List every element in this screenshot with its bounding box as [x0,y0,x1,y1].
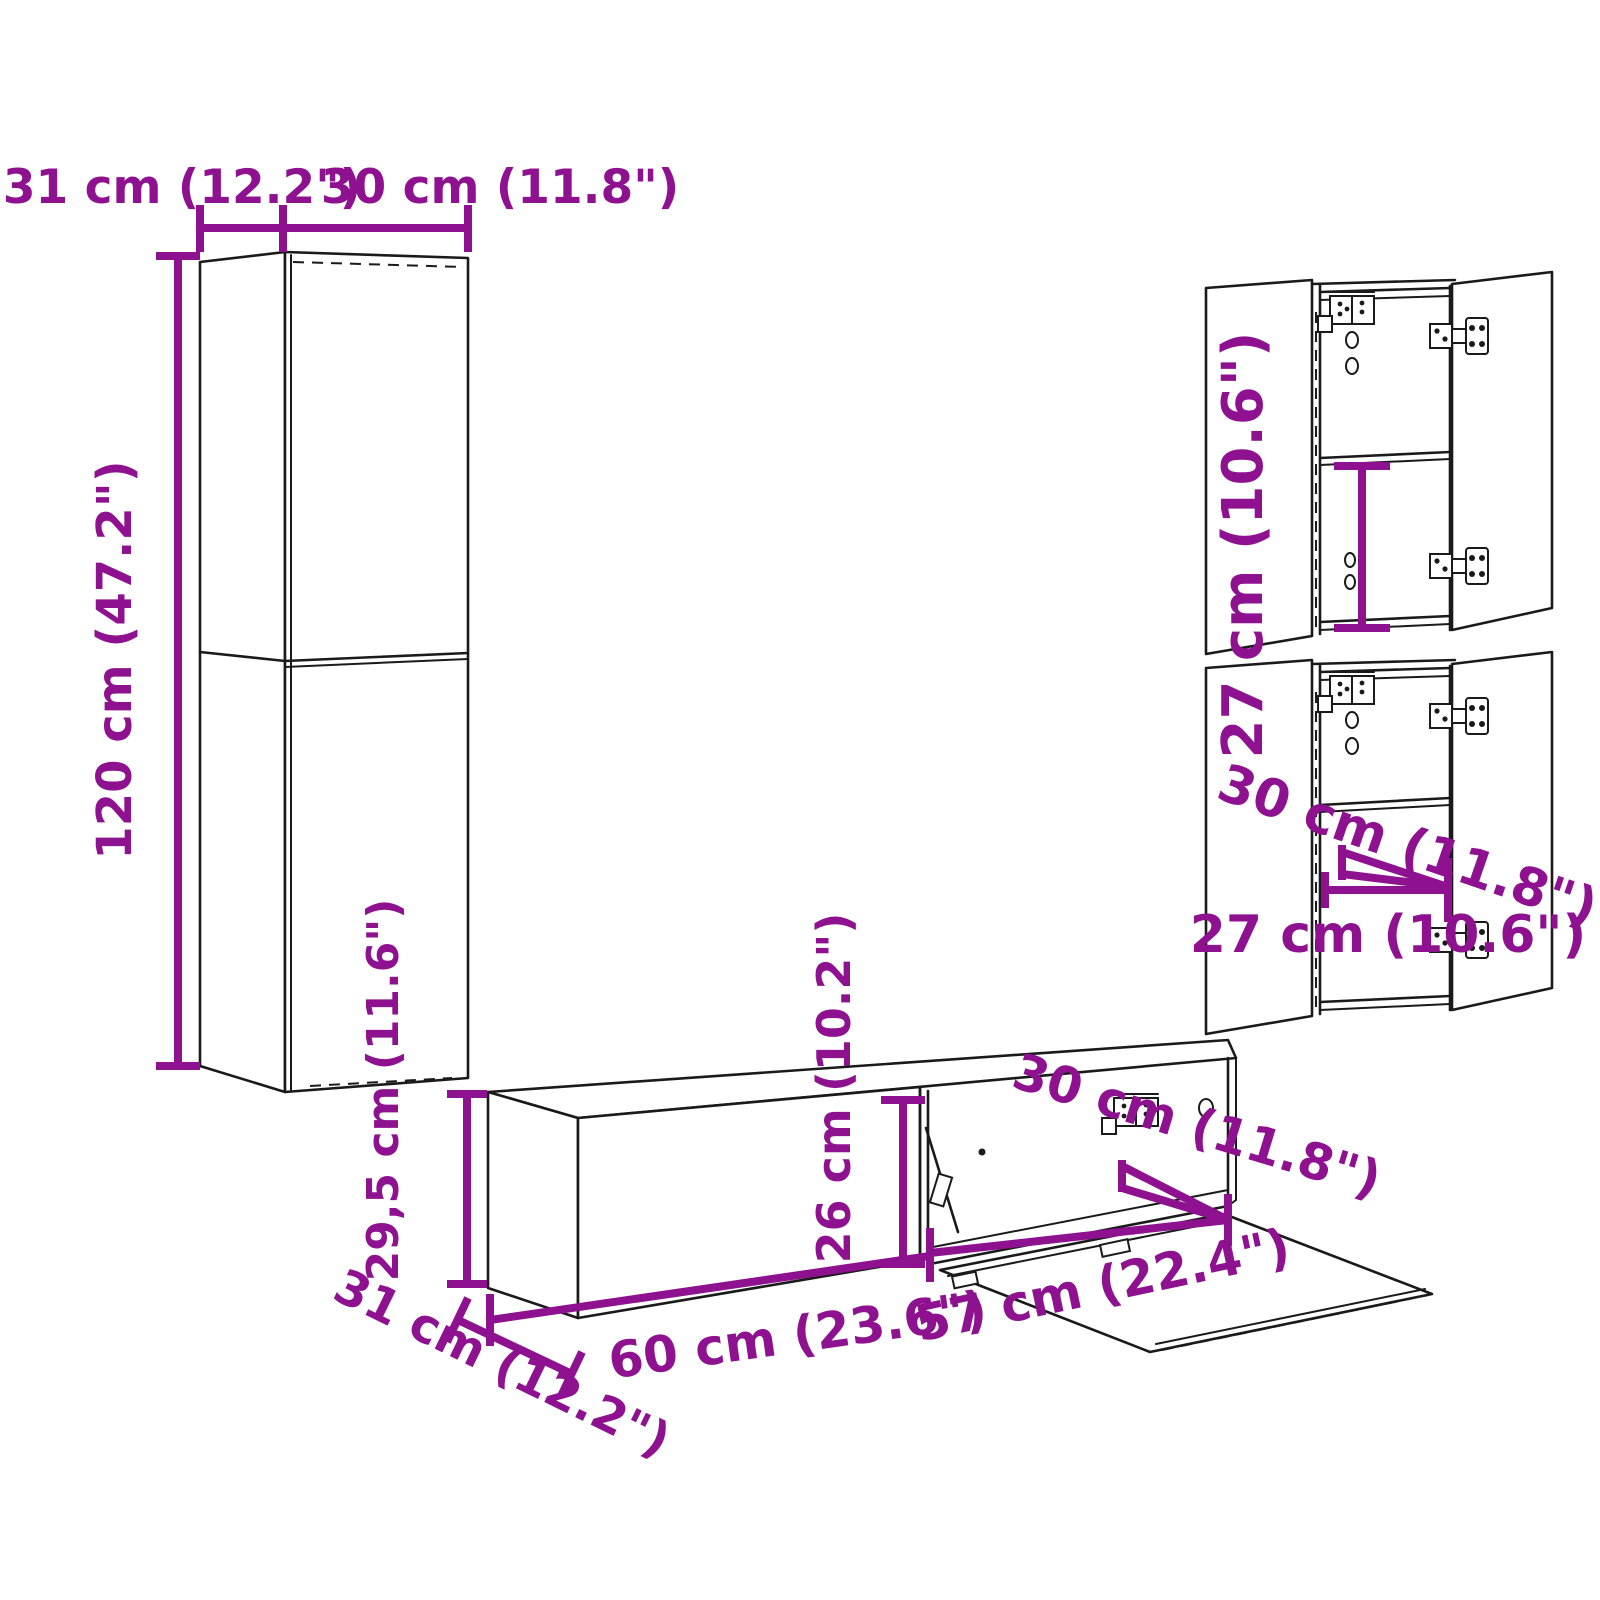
dimension-diagram: 31 cm (12.2") 30 cm (11.8") 120 cm (47.2… [0,0,1600,1600]
wall-mount-bracket [1318,672,1374,712]
left-tall-cabinet [200,252,468,1092]
diagram-svg: 31 cm (12.2") 30 cm (11.8") 120 cm (47.2… [0,0,1600,1600]
tv-compartment-depth-label: 30 cm (11.8") [1006,1042,1388,1209]
wall-mount-bracket [1318,292,1374,332]
right-cabinet-inner-height-label: 27 cm (10.6") [1211,332,1276,759]
right-cabinet-inner-width-label: 27 cm (10.6") [1190,905,1587,965]
left-cabinet-height-label: 120 cm (47.2") [87,460,143,859]
tv-inner-height-label: 26 cm (10.2") [807,913,861,1264]
left-cabinet-width-label: 30 cm (11.8") [321,160,679,215]
left-cabinet-depth-label: 31 cm (12.2") [3,160,361,215]
left-cabinet-side-face [200,252,285,1092]
tv-cabinet-side-face [488,1092,578,1318]
tv-height-label: 29,5 cm (11.6") [358,899,409,1282]
